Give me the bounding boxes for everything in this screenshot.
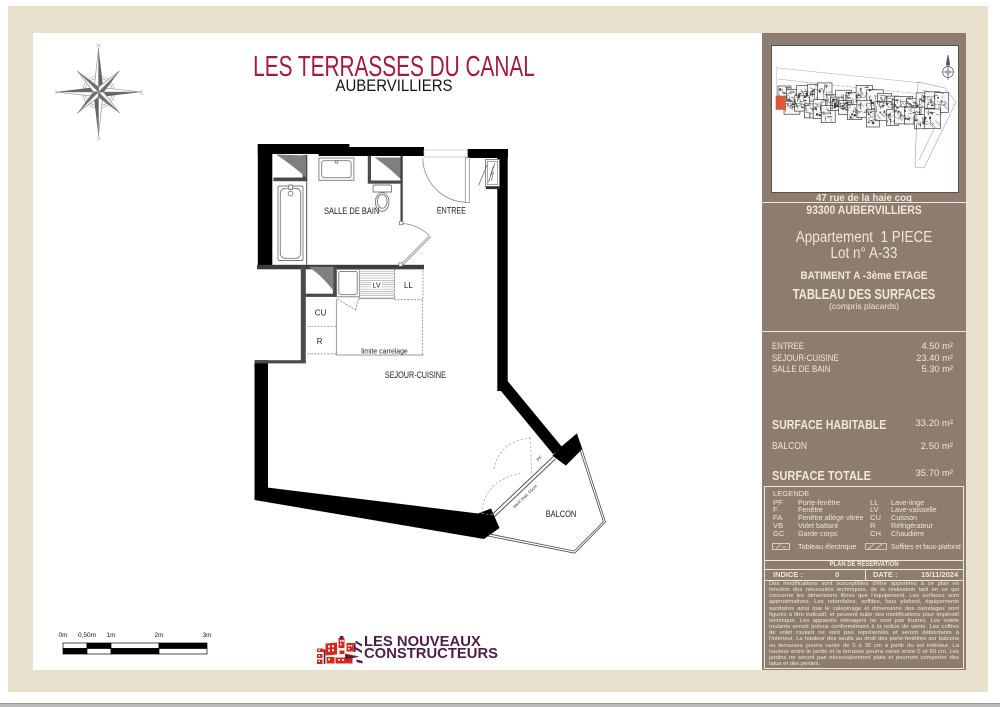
svg-text:S: S <box>97 135 101 141</box>
svg-text:E: E <box>140 91 144 97</box>
svg-text:PF: PF <box>536 454 544 462</box>
svg-text:ENTREE: ENTREE <box>437 205 466 215</box>
svg-text:LV: LV <box>372 283 380 290</box>
svg-text:1m: 1m <box>106 632 115 639</box>
svg-text:SALLE DE BAIN: SALLE DE BAIN <box>324 206 380 216</box>
svg-text:SEJOUR-CUISINE: SEJOUR-CUISINE <box>385 370 446 380</box>
svg-text:3m: 3m <box>202 632 211 639</box>
svg-text:0m: 0m <box>58 632 67 639</box>
svg-text:LL: LL <box>404 281 413 290</box>
svg-text:0,50m: 0,50m <box>78 632 96 639</box>
svg-text:N: N <box>96 44 101 50</box>
svg-text:R: R <box>317 337 323 346</box>
svg-text:limite carrelage: limite carrelage <box>361 347 408 356</box>
svg-text:2m: 2m <box>154 632 163 639</box>
svg-text:O: O <box>54 91 58 97</box>
svg-text:CU: CU <box>315 309 327 318</box>
svg-text:BALCON: BALCON <box>546 509 577 519</box>
